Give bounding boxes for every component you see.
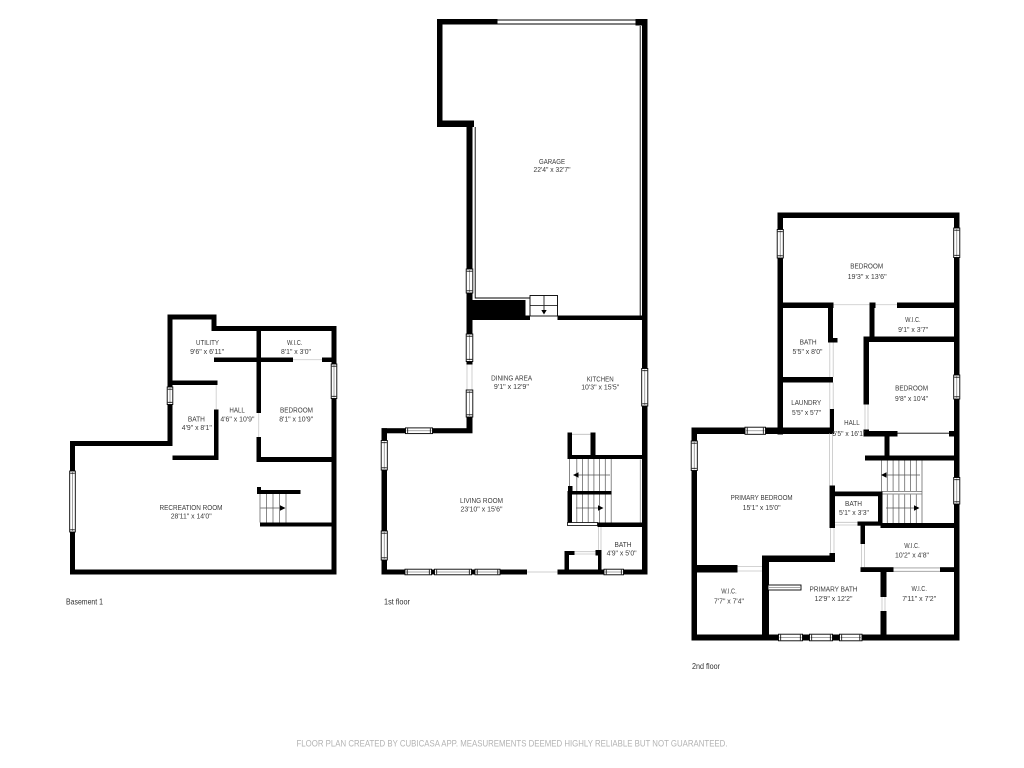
svg-text:23'10" x 15'6": 23'10" x 15'6" xyxy=(461,505,503,514)
svg-text:15'1" x 15'0": 15'1" x 15'0" xyxy=(743,503,781,512)
svg-text:BATH: BATH xyxy=(845,499,862,508)
svg-text:7'7" x 7'4": 7'7" x 7'4" xyxy=(714,597,744,606)
svg-text:8'1" x 3'0": 8'1" x 3'0" xyxy=(281,347,311,356)
svg-text:9'8" x 10'4": 9'8" x 10'4" xyxy=(895,394,928,403)
svg-text:9'1" x 12'9": 9'1" x 12'9" xyxy=(494,382,529,391)
svg-text:W.I.C.: W.I.C. xyxy=(287,338,303,347)
svg-text:5'5" x 16'1": 5'5" x 16'1" xyxy=(832,429,865,438)
svg-text:LIVING ROOM: LIVING ROOM xyxy=(460,496,503,505)
svg-text:9'1" x 3'7": 9'1" x 3'7" xyxy=(898,325,928,334)
svg-text:4'9" x 5'0": 4'9" x 5'0" xyxy=(607,549,637,558)
svg-text:22'4" x 32'7": 22'4" x 32'7" xyxy=(534,165,571,174)
svg-text:5'5" x 5'7": 5'5" x 5'7" xyxy=(792,408,821,417)
svg-text:5'5" x 8'0": 5'5" x 8'0" xyxy=(793,347,823,356)
svg-text:7'11" x 7'2": 7'11" x 7'2" xyxy=(902,594,936,603)
svg-text:HALL: HALL xyxy=(229,405,245,414)
svg-text:W.I.C.: W.I.C. xyxy=(905,315,921,324)
svg-text:12'9" x 12'2": 12'9" x 12'2" xyxy=(815,594,853,603)
svg-text:2nd floor: 2nd floor xyxy=(692,661,720,671)
svg-text:Basement 1: Basement 1 xyxy=(66,597,103,607)
svg-text:PRIMARY BEDROOM: PRIMARY BEDROOM xyxy=(731,493,793,502)
svg-text:LAUNDRY: LAUNDRY xyxy=(791,398,821,407)
svg-text:BEDROOM: BEDROOM xyxy=(895,384,928,393)
svg-text:HALL: HALL xyxy=(844,418,860,427)
svg-text:W.I.C.: W.I.C. xyxy=(721,587,737,596)
svg-text:BEDROOM: BEDROOM xyxy=(280,405,313,414)
svg-text:4'9" x 8'1": 4'9" x 8'1" xyxy=(182,423,212,432)
svg-text:9'6" x 6'11": 9'6" x 6'11" xyxy=(190,347,224,356)
svg-text:10'3" x 15'5": 10'3" x 15'5" xyxy=(581,382,619,391)
svg-text:PRIMARY BATH: PRIMARY BATH xyxy=(810,584,858,593)
svg-text:1st floor: 1st floor xyxy=(384,597,410,607)
svg-text:BATH: BATH xyxy=(800,337,817,346)
svg-text:5'1" x 3'3": 5'1" x 3'3" xyxy=(839,508,869,517)
svg-text:UTILITY: UTILITY xyxy=(196,338,219,347)
svg-text:4'6" x 10'9": 4'6" x 10'9" xyxy=(220,415,254,424)
svg-text:FLOOR PLAN CREATED BY CUBICASA: FLOOR PLAN CREATED BY CUBICASA APP. MEAS… xyxy=(297,739,728,749)
svg-text:W.I.C.: W.I.C. xyxy=(904,541,920,550)
svg-text:W.I.C.: W.I.C. xyxy=(911,584,927,593)
svg-text:8'1" x 10'9": 8'1" x 10'9" xyxy=(279,415,313,424)
svg-text:BEDROOM: BEDROOM xyxy=(850,261,883,270)
svg-text:10'2" x 4'8": 10'2" x 4'8" xyxy=(895,550,929,559)
svg-text:19'3" x 13'6": 19'3" x 13'6" xyxy=(848,272,887,281)
svg-text:28'11" x 14'0": 28'11" x 14'0" xyxy=(171,511,212,520)
